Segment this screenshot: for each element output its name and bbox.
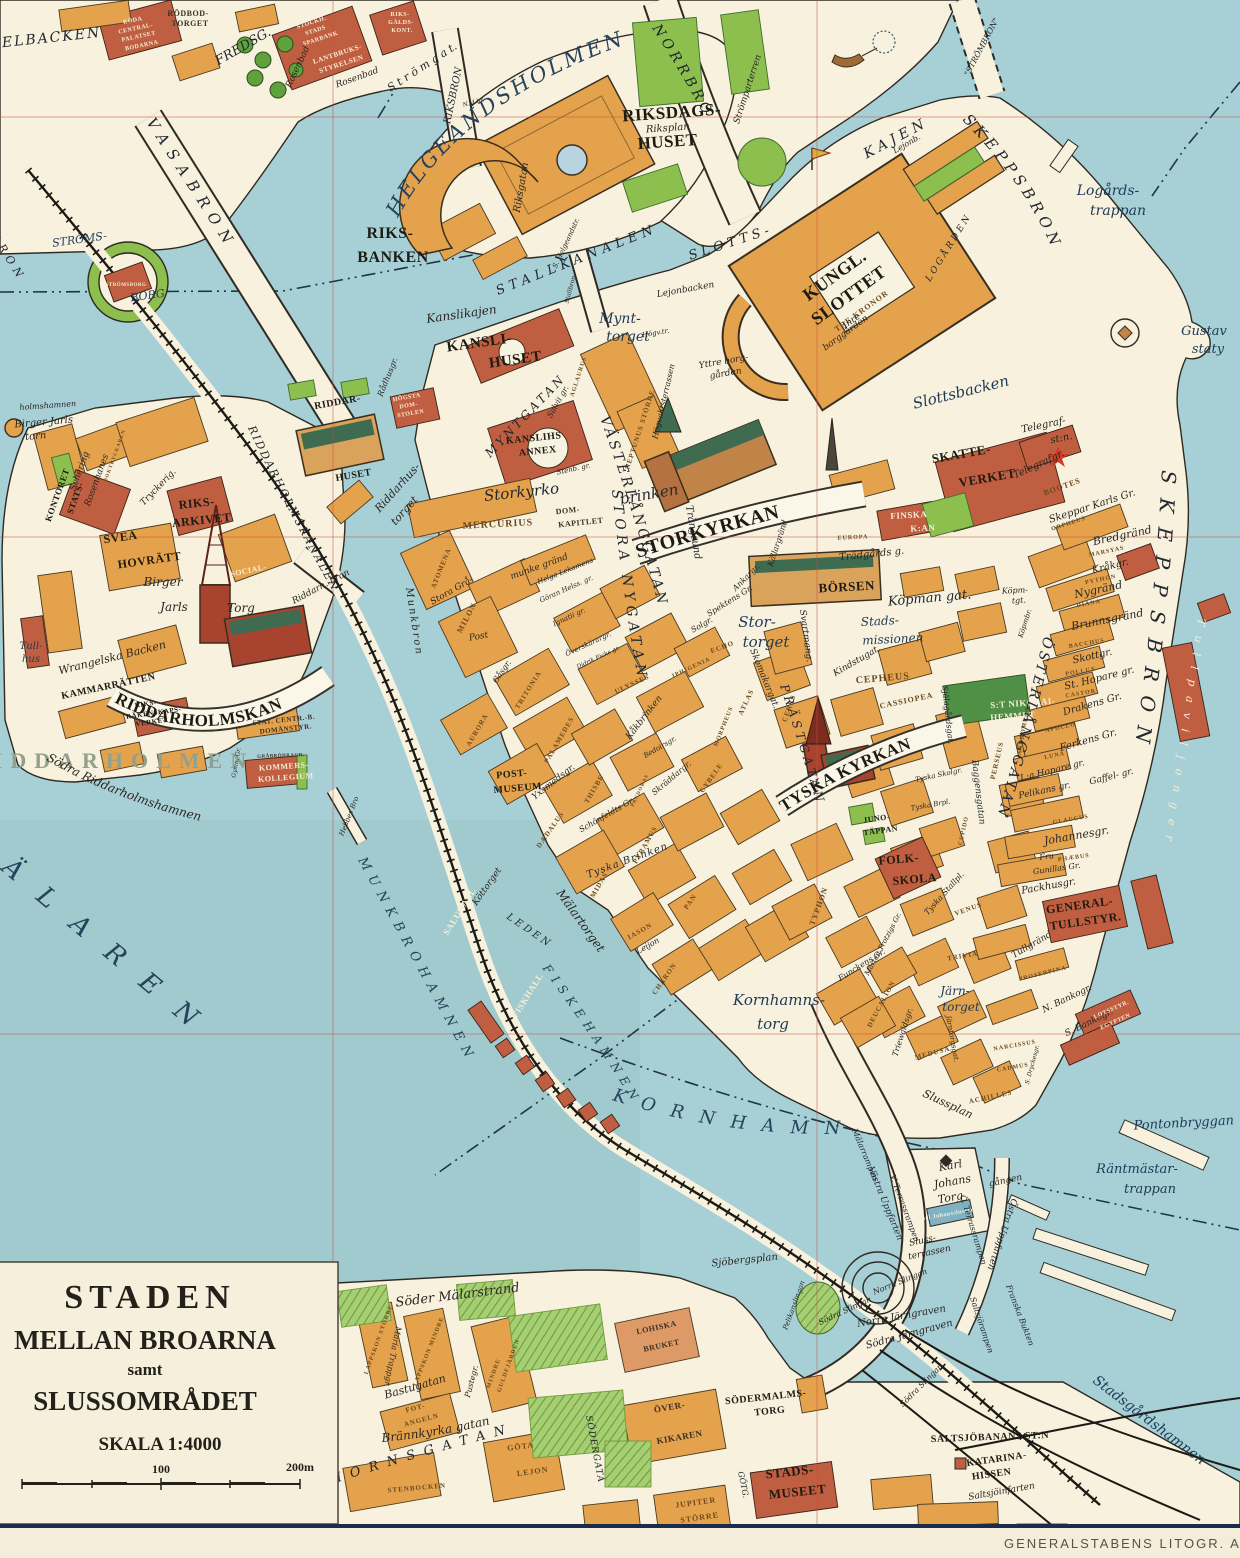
- title-cartouche: STADEN MELLAN BROARNA samt SLUSSOMRÅDET …: [0, 1262, 338, 1524]
- park-area: [297, 755, 307, 789]
- map-title-line4: SLUSSOMRÅDET: [33, 1386, 257, 1416]
- katarinahissen: [955, 1458, 966, 1469]
- scale-label-100: 100: [152, 1462, 170, 1476]
- park-area: [632, 17, 703, 106]
- building-block: [918, 1502, 999, 1527]
- park-area: [849, 803, 876, 825]
- building-block: [245, 756, 303, 789]
- map-title-line1: STADEN: [64, 1279, 235, 1316]
- park-area: [863, 827, 885, 844]
- credit-text: GENERALSTABENS LITOGR. ANSTALT, S: [1004, 1536, 1240, 1551]
- map-title-line2: MELLAN BROARNA: [14, 1325, 276, 1355]
- stockholm-old-town-map: ELBACKENFREDSG.RÖDBOD-TORGETRÖDACENTRAL-…: [0, 0, 1240, 1558]
- pelikan-green: [796, 1282, 840, 1334]
- map-scale-text: SKALA 1:4000: [99, 1434, 222, 1455]
- park-area: [457, 1280, 516, 1321]
- credit-strip: GENERALSTABENS LITOGR. ANSTALT, S: [0, 1524, 1240, 1558]
- birger-jarls-torn: [5, 419, 23, 437]
- park-area: [337, 1285, 392, 1328]
- map-canvas: ELBACKENFREDSG.RÖDBOD-TORGETRÖDACENTRAL-…: [0, 0, 1240, 1558]
- building-block: [100, 523, 181, 591]
- scale-label-200m: 200m: [286, 1460, 314, 1474]
- building-block: [796, 1375, 828, 1413]
- map-title-line3: samt: [128, 1360, 163, 1379]
- park-area: [605, 1441, 651, 1487]
- riksdag-dome: [557, 145, 587, 175]
- borsen-building: [749, 550, 881, 607]
- stromparterren-garden: [738, 138, 786, 186]
